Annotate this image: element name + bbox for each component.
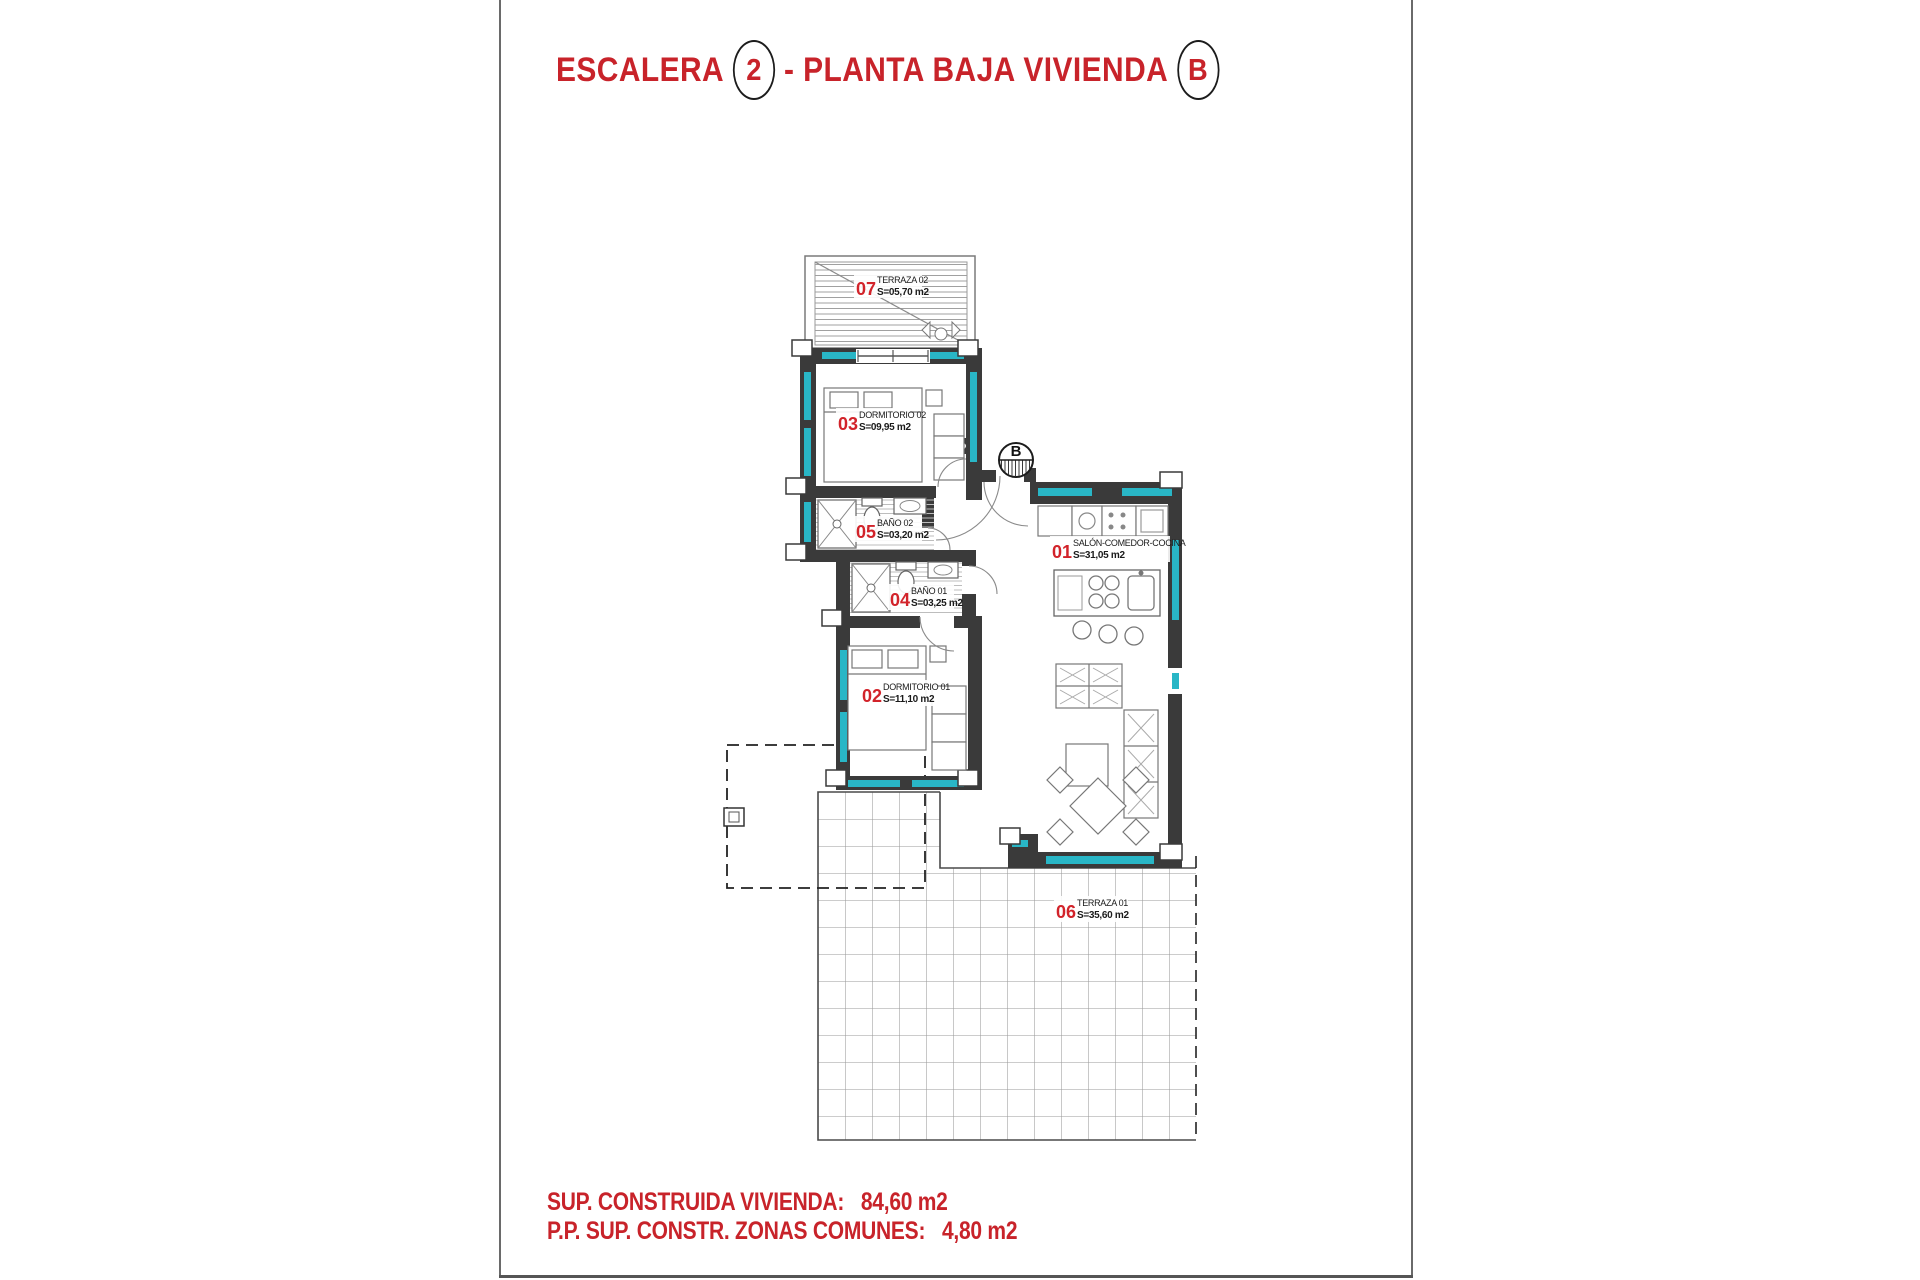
- built-area-label: SUP. CONSTRUIDA VIVIENDA:: [547, 1188, 844, 1216]
- footer-area-line-1: SUP. CONSTRUIDA VIVIENDA:84,60 m2: [547, 1188, 948, 1217]
- room-label-dormitorio-01: 02 DORMITORIO 01 S=11,10 m2: [860, 680, 950, 706]
- sofa-2: [1124, 710, 1158, 818]
- room-number: 06: [1056, 902, 1076, 922]
- stair-symbol: B: [999, 443, 1033, 477]
- room-name: DORMITORIO 01: [883, 682, 950, 692]
- room-area: S=09,95 m2: [859, 422, 912, 433]
- drawing-sheet: ESCALERA 2 - PLANTA BAJA VIVIENDA B: [0, 0, 1920, 1280]
- bedroom-02-furniture: [824, 388, 964, 482]
- sofa: [1056, 664, 1122, 708]
- terrace-07: [805, 256, 975, 348]
- room-area: S=05,70 m2: [877, 287, 930, 298]
- room-number: 04: [890, 590, 910, 610]
- room-area: S=31,05 m2: [1073, 550, 1126, 561]
- room-number: 03: [838, 414, 858, 434]
- bedroom-01-furniture: [848, 646, 966, 770]
- room-number: 01: [1052, 542, 1072, 562]
- footer-area-line-2: P.P. SUP. CONSTR. ZONAS COMUNES:4,80 m2: [547, 1217, 1017, 1246]
- room-number: 05: [856, 522, 876, 542]
- pergola-post: [724, 808, 744, 826]
- room-name: TERRAZA 02: [877, 275, 928, 285]
- bar-stools: [1073, 621, 1143, 645]
- room-name: SALÓN-COMEDOR-COCINA: [1073, 538, 1186, 548]
- room-number: 07: [856, 279, 876, 299]
- room-label-salon: 01 SALÓN-COMEDOR-COCINA S=31,05 m2: [1050, 536, 1186, 562]
- room-area: S=11,10 m2: [883, 694, 935, 705]
- stair-symbol-letter: B: [1011, 443, 1022, 460]
- kitchen-island: [1054, 570, 1160, 616]
- room-name: DORMITORIO 02: [859, 410, 926, 420]
- kitchen-cabinets: [1038, 506, 1168, 536]
- room-name: BAÑO 02: [877, 518, 913, 528]
- room-name: TERRAZA 01: [1077, 898, 1128, 908]
- common-zones-value: 4,80 m2: [942, 1217, 1017, 1245]
- room-number: 02: [862, 686, 882, 706]
- closet-02: [934, 414, 964, 480]
- shower-02: [818, 500, 856, 548]
- common-zones-label: P.P. SUP. CONSTR. ZONAS COMUNES:: [547, 1217, 925, 1245]
- room-area: S=03,20 m2: [877, 530, 930, 541]
- room-name: BAÑO 01: [911, 586, 947, 596]
- sink-02: [894, 498, 926, 514]
- room-label-terraza-01: 06 TERRAZA 01 S=35,60 m2: [1054, 896, 1130, 922]
- room-label-bano-02: 05 BAÑO 02 S=03,20 m2: [854, 516, 930, 542]
- room-area: S=03,25 m2: [911, 598, 964, 609]
- room-label-bano-01: 04 BAÑO 01 S=03,25 m2: [888, 584, 964, 610]
- room-area: S=35,60 m2: [1077, 910, 1130, 921]
- floor-plan: B 07 TERRAZA 02 S=05,70 m2 03 DORMITORIO…: [0, 0, 1920, 1280]
- built-area-value: 84,60 m2: [861, 1188, 948, 1216]
- shower-01: [852, 564, 890, 612]
- room-label-terraza-02: 07 TERRAZA 02 S=05,70 m2: [854, 272, 930, 299]
- sink-01: [928, 562, 958, 578]
